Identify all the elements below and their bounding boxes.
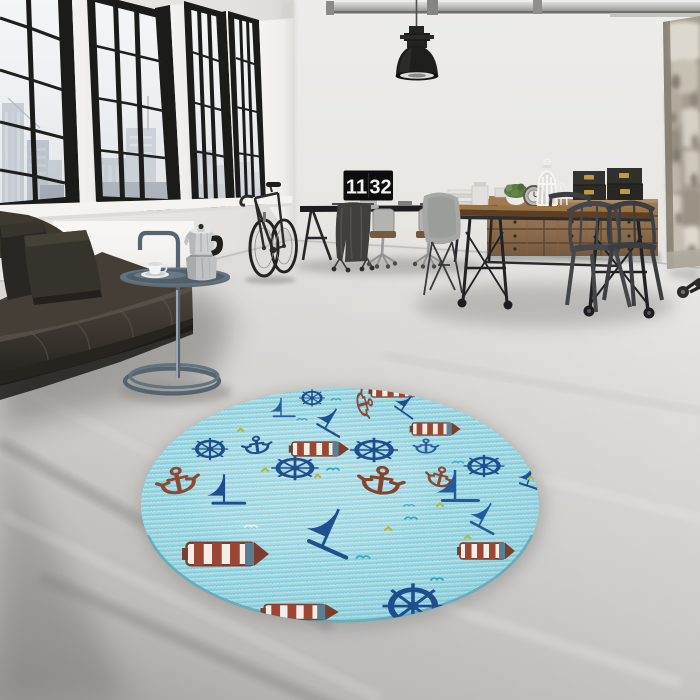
svg-text:11: 11 <box>346 177 367 199</box>
svg-text:32: 32 <box>369 177 391 199</box>
